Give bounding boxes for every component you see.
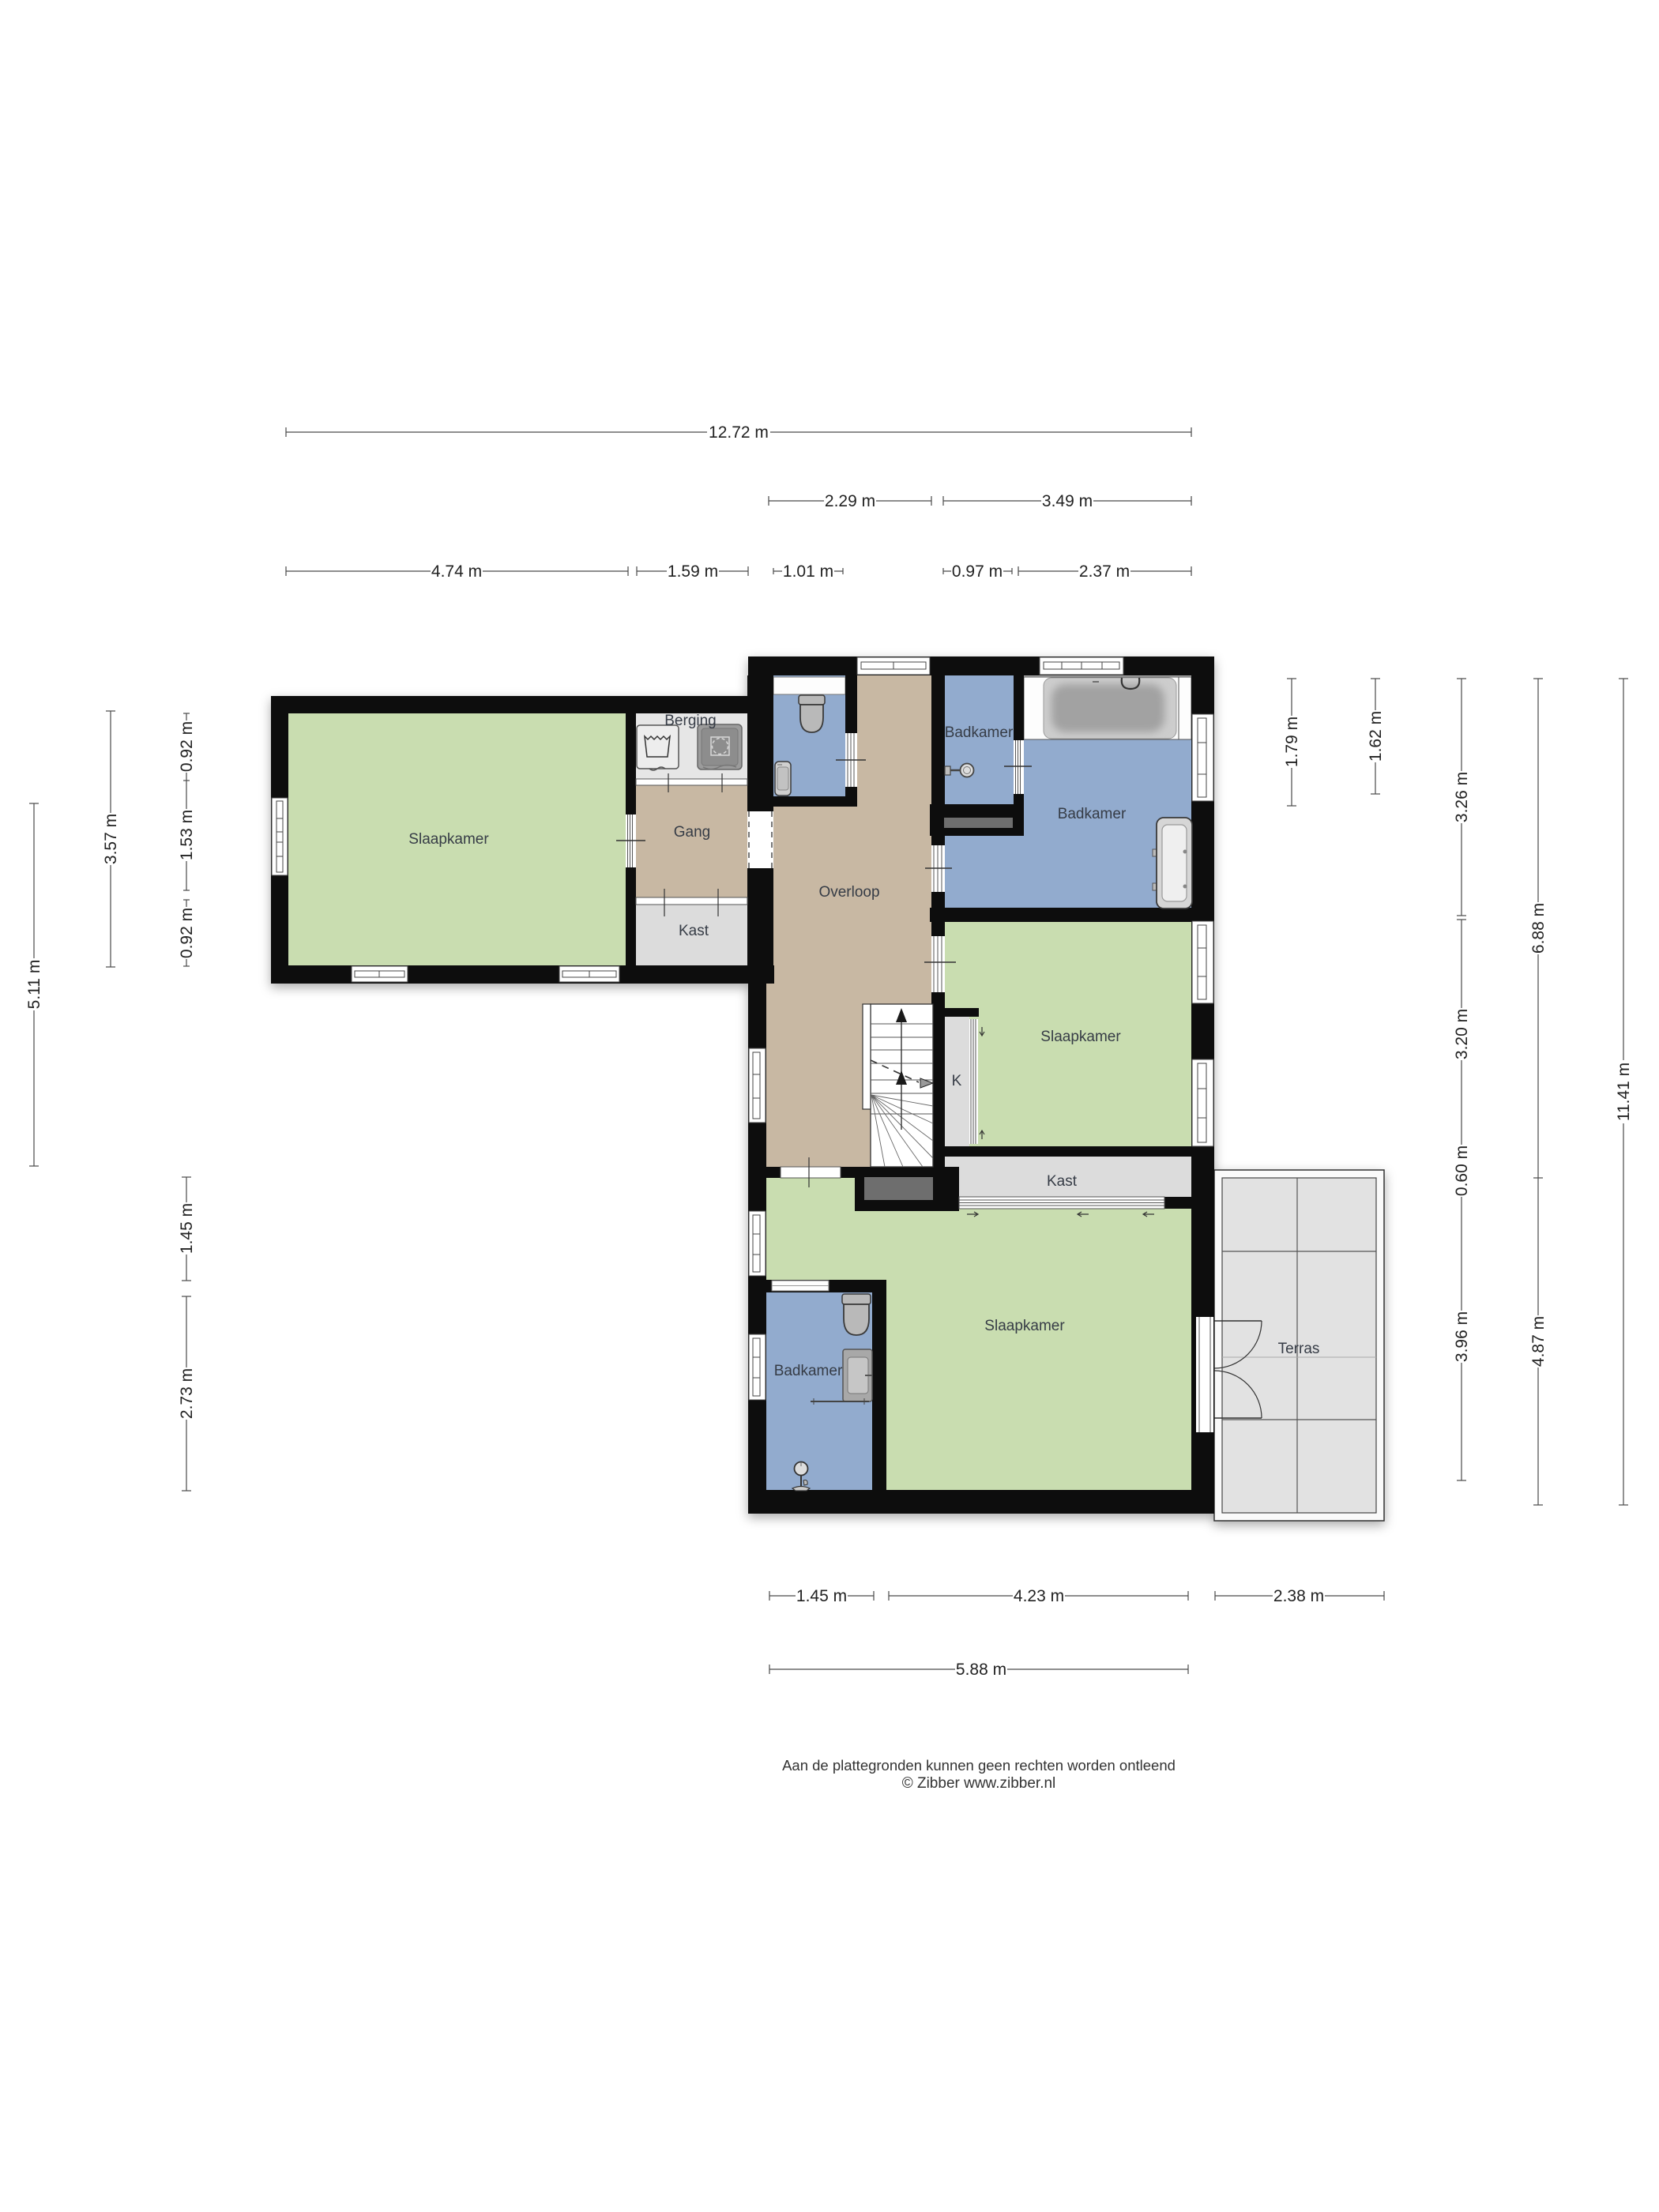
svg-text:6.88 m: 6.88 m (1529, 903, 1548, 954)
svg-text:5.11 m: 5.11 m (25, 960, 43, 1010)
svg-text:Badkamer: Badkamer (945, 724, 1014, 741)
svg-text:0.97 m: 0.97 m (952, 562, 1003, 581)
svg-text:3.26 m: 3.26 m (1453, 772, 1471, 822)
svg-text:Slaapkamer: Slaapkamer (1040, 1029, 1121, 1045)
svg-text:Badkamer: Badkamer (774, 1363, 843, 1379)
svg-text:Slaapkamer: Slaapkamer (984, 1318, 1065, 1334)
svg-text:2.29 m: 2.29 m (825, 492, 875, 510)
svg-text:Gang: Gang (674, 824, 710, 841)
svg-text:0.92 m: 0.92 m (178, 721, 196, 772)
svg-text:1.45 m: 1.45 m (178, 1203, 196, 1254)
svg-text:1.01 m: 1.01 m (783, 562, 833, 581)
svg-text:1.53 m: 1.53 m (178, 810, 196, 860)
svg-text:K: K (952, 1073, 962, 1089)
svg-text:Badkamer: Badkamer (1058, 806, 1127, 822)
svg-text:5.88 m: 5.88 m (956, 1661, 1006, 1679)
svg-text:4.87 m: 4.87 m (1529, 1316, 1548, 1367)
svg-text:3.57 m: 3.57 m (102, 814, 120, 864)
svg-text:2.37 m: 2.37 m (1079, 562, 1130, 581)
svg-text:4.23 m: 4.23 m (1014, 1587, 1064, 1605)
svg-text:1.62 m: 1.62 m (1367, 711, 1385, 762)
svg-text:Berging: Berging (664, 713, 717, 729)
svg-text:Kast: Kast (679, 923, 709, 939)
svg-text:Terras: Terras (1278, 1341, 1320, 1357)
svg-text:© Zibber www.zibber.nl: © Zibber www.zibber.nl (902, 1775, 1056, 1792)
svg-text:11.41 m: 11.41 m (1615, 1063, 1633, 1121)
svg-text:3.20 m: 3.20 m (1453, 1009, 1471, 1059)
svg-text:1.79 m: 1.79 m (1283, 717, 1301, 767)
svg-text:12.72 m: 12.72 m (709, 423, 769, 442)
svg-text:2.73 m: 2.73 m (178, 1368, 196, 1419)
svg-text:Aan de plattegronden kunnen ge: Aan de plattegronden kunnen geen rechten… (782, 1757, 1176, 1774)
svg-text:3.49 m: 3.49 m (1042, 492, 1093, 510)
svg-text:4.74 m: 4.74 m (431, 562, 482, 581)
svg-text:3.96 m: 3.96 m (1453, 1311, 1471, 1362)
svg-text:2.38 m: 2.38 m (1273, 1587, 1324, 1605)
svg-text:0.60 m: 0.60 m (1453, 1145, 1471, 1196)
svg-text:Slaapkamer: Slaapkamer (408, 831, 489, 848)
svg-text:Overloop: Overloop (818, 884, 879, 901)
svg-text:Kast: Kast (1047, 1173, 1078, 1190)
svg-text:1.45 m: 1.45 m (796, 1587, 847, 1605)
svg-text:1.59 m: 1.59 m (668, 562, 718, 581)
svg-text:0.92 m: 0.92 m (178, 908, 196, 958)
